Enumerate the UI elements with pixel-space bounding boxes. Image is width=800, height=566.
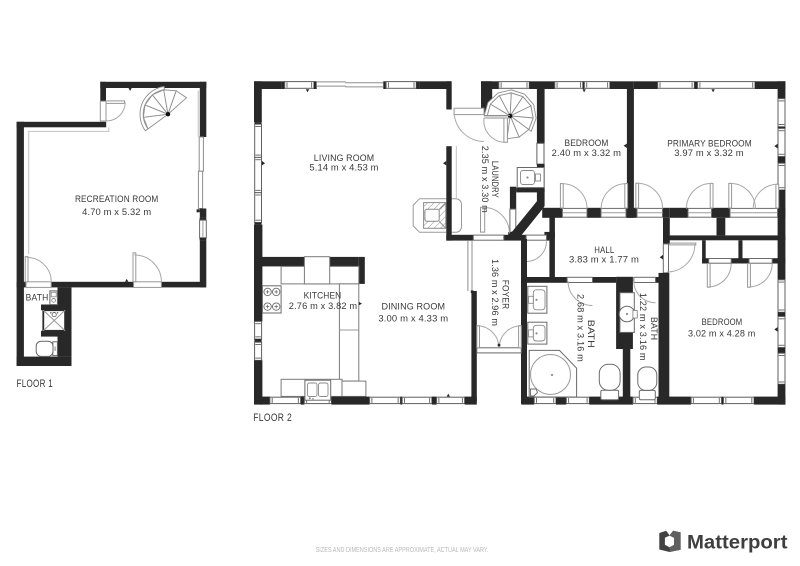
svg-text:2.68 m x 3.16 m: 2.68 m x 3.16 m — [574, 294, 585, 362]
svg-text:BATH: BATH — [26, 293, 49, 304]
svg-text:1.22 m x 3.16 m: 1.22 m x 3.16 m — [637, 293, 648, 361]
svg-text:FLOOR 1: FLOOR 1 — [17, 378, 54, 390]
svg-text:FLOOR 2: FLOOR 2 — [253, 412, 292, 424]
svg-text:BEDROOM: BEDROOM — [702, 317, 743, 328]
svg-text:DINING ROOM: DINING ROOM — [381, 301, 445, 312]
svg-text:BATH: BATH — [648, 317, 659, 340]
svg-text:2.35 m x 3.30 m: 2.35 m x 3.30 m — [479, 146, 490, 213]
svg-text:SIZES AND DIMENSIONS ARE APPRO: SIZES AND DIMENSIONS ARE APPROXIMATE, AC… — [316, 545, 489, 554]
svg-text:RECREATION ROOM: RECREATION ROOM — [75, 194, 159, 205]
svg-text:3.97 m x 3.32 m: 3.97 m x 3.32 m — [674, 148, 744, 159]
svg-text:4.70 m x 5.32 m: 4.70 m x 5.32 m — [82, 207, 151, 218]
svg-text:2.76 m x 3.82 m: 2.76 m x 3.82 m — [289, 301, 357, 312]
svg-text:3.00 m x 4.33 m: 3.00 m x 4.33 m — [378, 313, 448, 324]
svg-text:Matterport: Matterport — [687, 533, 788, 554]
svg-text:1.36 m x 2.96 m: 1.36 m x 2.96 m — [489, 259, 500, 326]
svg-text:KITCHEN: KITCHEN — [304, 291, 342, 302]
svg-text:3.02 m x 4.28 m: 3.02 m x 4.28 m — [688, 328, 756, 339]
svg-text:BATH: BATH — [585, 320, 596, 348]
svg-text:5.14 m x 4.53 m: 5.14 m x 4.53 m — [309, 162, 378, 173]
svg-text:3.83 m x 1.77 m: 3.83 m x 1.77 m — [569, 255, 639, 266]
svg-text:FOYER: FOYER — [499, 280, 510, 310]
svg-text:2.40 m x 3.32 m: 2.40 m x 3.32 m — [552, 148, 622, 159]
